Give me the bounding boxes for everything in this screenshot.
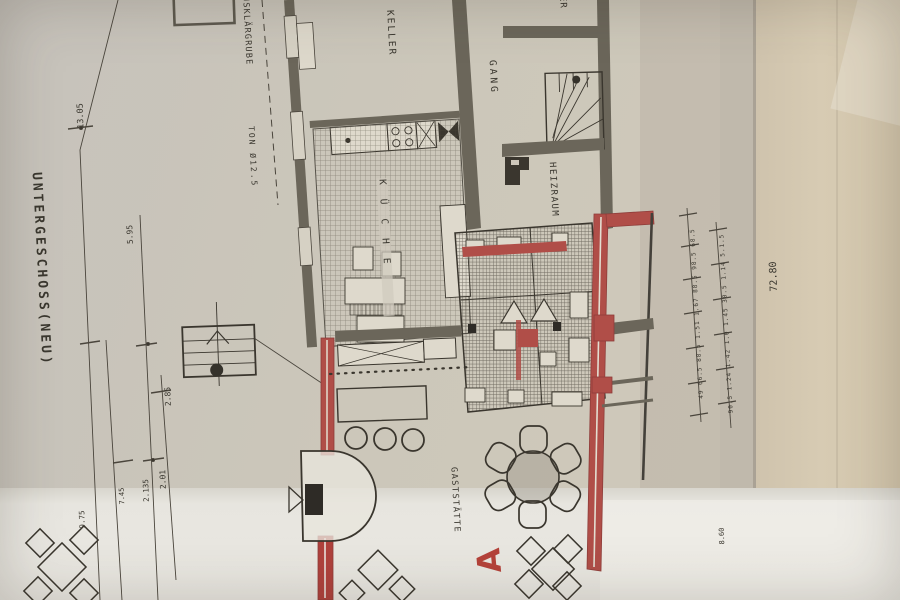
dim-13-05: 13.05 xyxy=(75,94,87,138)
gang-top-wall xyxy=(503,26,601,38)
dim-72-80: 72.80 xyxy=(768,250,781,302)
heizraum-step-walls xyxy=(505,157,529,185)
red-column xyxy=(594,315,614,341)
table-rect xyxy=(337,386,427,422)
dim-2-85: 2.85 xyxy=(163,379,173,413)
bar-counter xyxy=(289,451,376,541)
round-table-group xyxy=(482,426,584,528)
dim-9-75: 9.75 xyxy=(77,504,87,534)
property-dashed-line xyxy=(262,0,278,205)
dim-7-45: 7.45 xyxy=(117,481,126,511)
dim-2-135: 2.135 xyxy=(141,471,151,509)
marker-a: A xyxy=(468,536,524,584)
wc-block xyxy=(455,223,605,412)
floorplan-photo: UNTERGESCHOSS(NEU) USKLÄRGRUBE TON Ø12.5… xyxy=(0,0,900,600)
door-swing xyxy=(289,487,303,512)
dim-5-95: 5.95 xyxy=(125,217,135,251)
dotted-line xyxy=(330,367,472,374)
klaergrube-box xyxy=(173,0,234,25)
table-cluster-left xyxy=(24,526,98,600)
table-cluster-right xyxy=(515,535,582,600)
septic-structure xyxy=(181,301,256,387)
red-terrace-structure xyxy=(587,211,654,571)
dim-8-60: 8.60 xyxy=(717,519,726,553)
leader-line xyxy=(254,338,332,390)
right-exterior-wall-upper xyxy=(597,0,613,230)
table-cluster-mid xyxy=(339,550,414,600)
dim-2-01: 2.01 xyxy=(158,463,168,495)
label-er-partial: ER xyxy=(557,0,569,28)
stool-circles xyxy=(345,427,424,451)
red-column xyxy=(592,377,612,393)
